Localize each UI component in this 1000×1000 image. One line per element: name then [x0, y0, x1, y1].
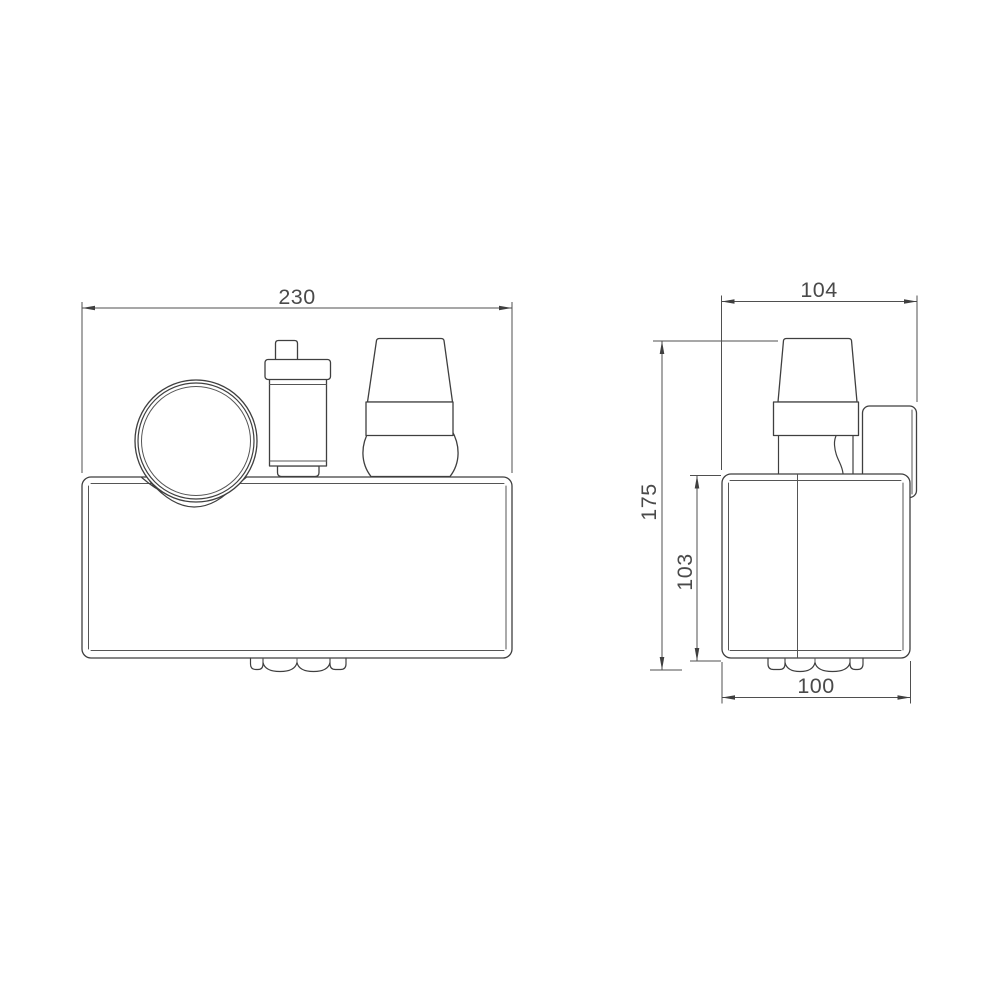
dim-side-overall-height-label: 175 [637, 483, 661, 520]
safety-valve-base [363, 430, 458, 477]
side-safety-valve [774, 339, 859, 474]
dim-front-overall-width-label: 230 [278, 285, 315, 309]
side-view: 104 175 103 100 [637, 278, 917, 704]
safety-valve-collar [366, 402, 453, 436]
dim-side-body-width: 100 [722, 661, 911, 704]
air-vent-stub [278, 466, 320, 477]
front-body [82, 477, 512, 658]
side-body [722, 474, 910, 658]
front-view: 230 [82, 285, 512, 672]
side-bottom-connectors [768, 658, 863, 672]
air-vent-cap-flange [265, 360, 331, 380]
safety-valve [363, 339, 458, 477]
inlet-pipe-port [135, 380, 257, 502]
air-vent-valve [265, 341, 331, 477]
safety-valve-cone-cap [368, 339, 453, 403]
technical-drawing-canvas: 230 [0, 0, 1000, 1000]
air-vent-knob [276, 341, 298, 361]
front-bottom-connectors [251, 658, 347, 672]
side-safety-valve-cone-cap [778, 339, 857, 403]
side-safety-valve-collar [774, 402, 859, 436]
dim-side-body-height: 103 [673, 476, 721, 662]
dim-side-body-height-label: 103 [673, 553, 697, 590]
dim-side-body-width-label: 100 [797, 674, 834, 698]
air-vent-cylinder [270, 379, 327, 466]
dim-side-overall-width-label: 104 [800, 278, 837, 302]
